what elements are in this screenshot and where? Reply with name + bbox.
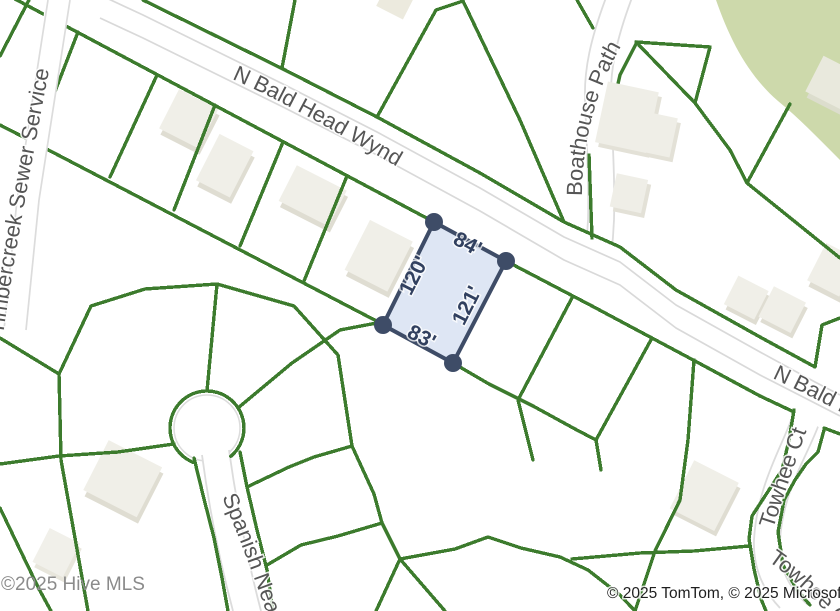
svg-text:©2025 Hive MLS: ©2025 Hive MLS bbox=[1, 574, 145, 595]
svg-text:© 2025 TomTom, © 2025 Microsof: © 2025 TomTom, © 2025 Microsoft Corporat… bbox=[607, 585, 840, 602]
